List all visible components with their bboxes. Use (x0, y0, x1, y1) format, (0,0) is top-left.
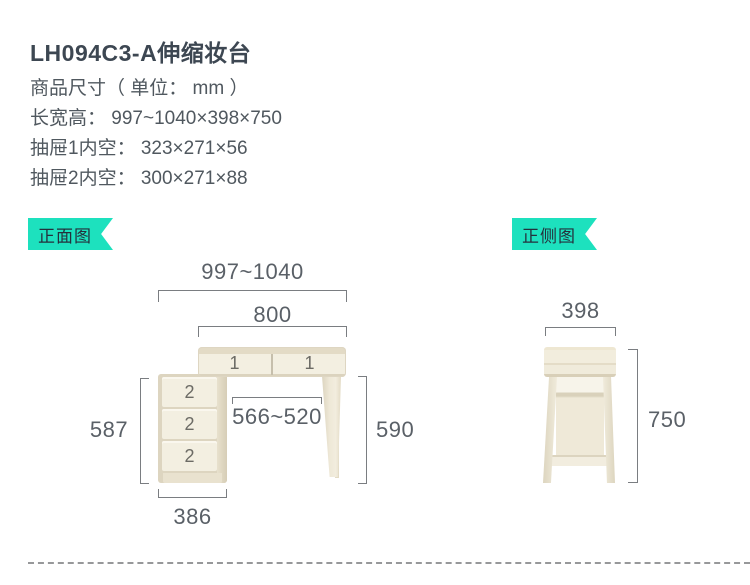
dim-bracket-total-width (158, 290, 347, 302)
cabinet-drawer-3-label: 2 (162, 441, 217, 471)
bottom-dashed-divider (28, 562, 750, 564)
product-spec-sheet: LH094C3-A伸缩妆台 商品尺寸（ 单位： mm ） 长宽高： 997~10… (0, 0, 750, 585)
dim-cabinet-height: 587 (87, 417, 131, 443)
dim-bracket-under-desk-height (358, 376, 367, 484)
cabinet-drawer-2-label: 2 (162, 409, 217, 439)
side-desk-top (544, 347, 616, 377)
desk-drawer-2-label: 1 (273, 350, 346, 376)
front-view-ribbon: 正面图 (28, 218, 113, 250)
side-right-leg (603, 377, 615, 483)
dim-cabinet-width: 386 (158, 504, 227, 530)
dim-bracket-knee-clearance (232, 397, 322, 404)
side-view-ribbon: 正侧图 (512, 218, 597, 250)
spec-line-size-unit: 商品尺寸（ 单位： mm ） (30, 74, 282, 104)
side-back-panel (556, 377, 604, 465)
dim-depth: 398 (545, 298, 616, 324)
dim-knee-clearance: 566~520 (217, 404, 337, 430)
dim-height: 750 (648, 407, 708, 433)
dim-under-desk-height: 590 (376, 417, 428, 443)
cabinet-side-face (217, 374, 227, 483)
desk-drawer-1-label: 1 (198, 350, 271, 376)
cabinet-plinth (163, 473, 222, 483)
product-title: LH094C3-A伸缩妆台 (30, 34, 251, 68)
side-stretcher (550, 455, 610, 466)
cabinet-drawer-2: 2 (162, 409, 217, 439)
dim-bracket-cabinet-height (140, 378, 149, 484)
spec-list: 商品尺寸（ 单位： mm ） 长宽高： 997~1040×398×750 抽屉1… (30, 74, 282, 194)
side-view-ribbon-label: 正侧图 (522, 222, 576, 247)
side-left-leg (543, 377, 557, 483)
dim-bracket-depth (545, 327, 616, 336)
spec-line-drawer1: 抽屉1内空： 323×271×56 (30, 134, 282, 164)
dim-total-width: 997~1040 (158, 259, 347, 285)
dim-desk-width: 800 (198, 302, 347, 328)
drawer-cabinet: 2 2 2 (158, 374, 227, 483)
cabinet-drawer-1: 2 (162, 377, 217, 407)
spec-line-lwh: 长宽高： 997~1040×398×750 (30, 104, 282, 134)
cabinet-drawer-1-label: 2 (162, 377, 217, 407)
dim-bracket-height (628, 349, 638, 483)
cabinet-drawer-3: 2 (162, 441, 217, 471)
side-view-diagram: 398 750 (500, 258, 740, 543)
dim-bracket-desk-width (198, 326, 347, 337)
dim-bracket-cabinet-width (158, 489, 227, 498)
front-view-ribbon-label: 正面图 (38, 222, 92, 247)
spec-line-drawer2: 抽屉2内空： 300×271×88 (30, 164, 282, 194)
front-view-diagram: 997~1040 800 2 2 2 1 1 566~520 587 (95, 258, 440, 543)
